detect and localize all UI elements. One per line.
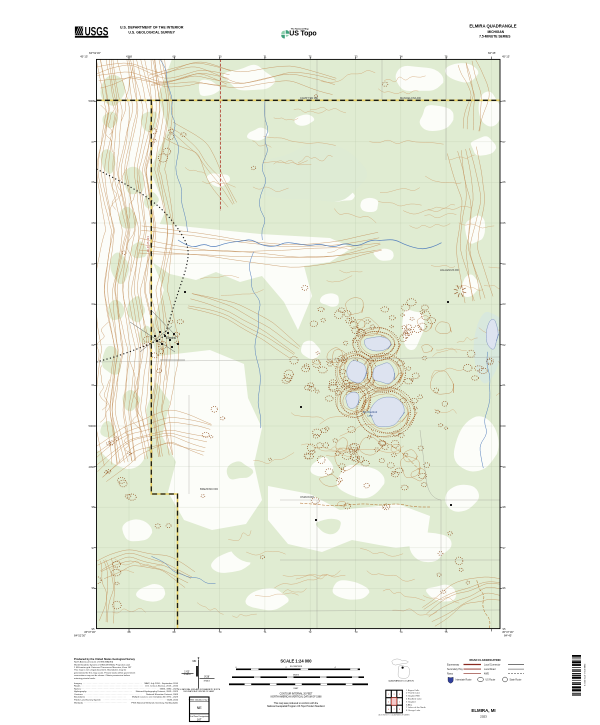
svg-text:06: 06 <box>503 180 506 184</box>
svg-text:70: 70 <box>219 630 222 634</box>
svg-text:71: 71 <box>264 630 267 634</box>
svg-text:Expressway: Expressway <box>447 663 460 666</box>
svg-text:70: 70 <box>219 55 222 59</box>
svg-text:Wetlands: Wetlands <box>74 701 84 704</box>
svg-text:84°45': 84°45' <box>504 634 512 638</box>
svg-text:CONTOUR INTERVAL 20 FEET: CONTOUR INTERVAL 20 FEET <box>280 693 313 696</box>
svg-text:NORTH AMERICAN VERTICAL DATUM: NORTH AMERICAN VERTICAL DATUM OF 1988 <box>271 696 322 699</box>
svg-text:HALLENIUS RD: HALLENIUS RD <box>440 268 459 272</box>
svg-text:FWS National Wetlands Inventor: FWS National Wetlands Inventory, Not Ava… <box>131 701 178 704</box>
svg-text:FEET: FEET <box>294 688 300 690</box>
svg-text:State Route: State Route <box>510 679 523 682</box>
svg-text:OSMUN RD: OSMUN RD <box>300 495 314 499</box>
svg-text:04: 04 <box>503 262 506 266</box>
svg-text:National Geospatial Program US: National Geospatial Program US Topo Prod… <box>267 705 325 708</box>
svg-text:Lake: Lake <box>367 414 373 418</box>
svg-text:74: 74 <box>400 630 403 634</box>
svg-text:Elmira: Elmira <box>166 336 176 340</box>
svg-text:Hydrography: Hydrography <box>74 690 87 693</box>
svg-text:U.S. GEOLOGICAL SURVEY: U.S. GEOLOGICAL SURVEY <box>128 31 175 35</box>
svg-text:National Hydrography Dataset,: National Hydrography Dataset, 2009 - 202… <box>136 690 179 693</box>
svg-text:ADJOINING 7.5' QUADRANGLE NAME: ADJOINING 7.5' QUADRANGLE NAMES <box>378 714 410 717</box>
svg-text:6 Alba: 6 Alba <box>406 703 413 706</box>
svg-text:7.5-MINUTE SERIES: 7.5-MINUTE SERIES <box>479 35 511 39</box>
svg-text:reservations may not be shown.: reservations may not be shown. Obtain pe… <box>74 674 131 677</box>
svg-text:MILES: MILES <box>293 674 299 676</box>
svg-text:0°28': 0°28' <box>204 675 210 678</box>
svg-text:Public Land Survey System: Public Land Survey System <box>74 699 101 702</box>
svg-text:5000: 5000 <box>89 424 95 428</box>
svg-text:1 Boyne Falls: 1 Boyne Falls <box>406 690 420 692</box>
svg-text:4 Bradford Lake: 4 Bradford Lake <box>406 698 422 701</box>
svg-text:Interstate Route: Interstate Route <box>456 679 473 682</box>
svg-text:BREZINSKI RD: BREZINSKI RD <box>200 487 218 491</box>
svg-text:MANCELONA RD: MANCELONA RD <box>400 96 421 100</box>
svg-text:19 MILS: 19 MILS <box>183 674 191 676</box>
svg-text:ELMIRA, MI: ELMIRA, MI <box>471 708 495 713</box>
svg-text:4WD: 4WD <box>484 674 489 676</box>
svg-text:03: 03 <box>503 302 506 306</box>
svg-text:73: 73 <box>355 55 358 59</box>
svg-text:MN: MN <box>192 660 196 663</box>
svg-text:06: 06 <box>92 180 95 184</box>
svg-text:DECLINATION AT CENTER OF SHEET: DECLINATION AT CENTER OF SHEET <box>183 690 215 693</box>
svg-text:7 Lakes of the North: 7 Lakes of the North <box>406 706 426 709</box>
svg-text:QUADRANGLE LOCATION: QUADRANGLE LOCATION <box>388 680 414 683</box>
svg-text:Produced by the United States: Produced by the United States Geological… <box>74 657 136 661</box>
svg-text:Multiple sources; see metadata: Multiple sources; see metadata file 1972… <box>132 696 179 699</box>
svg-text:Local Road: Local Road <box>484 669 496 671</box>
svg-text:CAMP TEN RD: CAMP TEN RD <box>300 96 318 100</box>
svg-text:71: 71 <box>264 55 267 59</box>
svg-text:Boundaries: Boundaries <box>74 696 86 699</box>
svg-text:05: 05 <box>503 221 506 225</box>
svg-text:ISBN 978-1-6772-3037-4: ISBN 978-1-6772-3037-4 <box>583 664 585 687</box>
svg-text:NE: NE <box>197 706 203 710</box>
svg-text:3 Gaylord NW: 3 Gaylord NW <box>406 695 421 698</box>
svg-text:ELMIRA QUADRANGLE: ELMIRA QUADRANGLE <box>469 23 516 28</box>
svg-text:84°45': 84°45' <box>488 51 496 55</box>
svg-text:84°52'30": 84°52'30" <box>89 51 101 55</box>
svg-text:NAIP, July 2016 - September 20: NAIP, July 2016 - September 2016 <box>144 682 178 685</box>
svg-text:Ramp: Ramp <box>447 674 454 676</box>
svg-text:U.S. Census Bureau, 2015 - 201: U.S. Census Bureau, 2015 - 2016 <box>145 685 179 688</box>
svg-text:USNG 100,000-m Sq. ID: USNG 100,000-m Sq. ID <box>189 699 210 701</box>
svg-text:generalized for this map scale: generalized for this map scale. Private … <box>74 671 136 674</box>
svg-text:07: 07 <box>503 140 506 144</box>
svg-text:BLM, 2016: BLM, 2016 <box>167 700 178 702</box>
svg-text:GNIS, 1980 - 2023: GNIS, 1980 - 2023 <box>160 688 179 690</box>
svg-text:ROAD CLASSIFICATION: ROAD CLASSIFICATION <box>469 658 500 662</box>
svg-text:01: 01 <box>503 383 506 387</box>
svg-text:01: 01 <box>92 383 95 387</box>
svg-text:1 000-meter grid: Universal Tr: 1 000-meter grid: Universal Transverse M… <box>74 666 132 669</box>
svg-text:45°15': 45°15' <box>80 55 88 59</box>
svg-text:08: 08 <box>503 99 506 103</box>
svg-text:00: 00 <box>503 424 506 428</box>
svg-text:5 Gaylord: 5 Gaylord <box>406 700 416 703</box>
svg-text:Roads: Roads <box>74 686 81 688</box>
svg-text:84°52'30": 84°52'30" <box>74 634 86 638</box>
svg-text:96: 96 <box>503 586 506 590</box>
svg-text:Names: Names <box>74 688 82 690</box>
svg-text:World Geodetic System of 1984: World Geodetic System of 1984 (WGS84). P… <box>74 663 131 666</box>
svg-text:99: 99 <box>503 465 506 469</box>
svg-text:8 MILS: 8 MILS <box>204 680 211 682</box>
svg-text:73: 73 <box>355 630 358 634</box>
svg-text:98: 98 <box>503 505 506 509</box>
svg-text:16T: 16T <box>197 717 202 721</box>
svg-text:04: 04 <box>92 262 95 266</box>
svg-text:2023: 2023 <box>480 715 487 719</box>
svg-text:MICHIGAN: MICHIGAN <box>487 30 504 34</box>
svg-text:1°03': 1°03' <box>184 670 190 673</box>
svg-text:SCALE 1:24 000: SCALE 1:24 000 <box>280 658 312 663</box>
svg-text:OLD US 131: OLD US 131 <box>146 236 150 252</box>
svg-text:This map was produced to confo: This map was produced to conform with th… <box>274 702 319 705</box>
svg-text:74: 74 <box>400 55 403 59</box>
svg-text:U.S. DEPARTMENT OF THE INTERIO: U.S. DEPARTMENT OF THE INTERIOR <box>120 26 184 30</box>
svg-text:Local Connector: Local Connector <box>484 663 501 666</box>
svg-text:45°15': 45°15' <box>502 55 510 59</box>
svg-text:North American Datum of 1983 (: North American Datum of 1983 (NAD83) <box>74 661 113 664</box>
svg-text:02: 02 <box>503 343 506 347</box>
svg-text:This map is not a legal docume: This map is not a legal document. Bounda… <box>74 669 127 672</box>
svg-text:8 Otsego Lake: 8 Otsego Lake <box>406 709 421 712</box>
svg-text:4999: 4999 <box>89 465 95 469</box>
svg-text:KILOMETERS: KILOMETERS <box>290 666 303 668</box>
svg-text:National Elevation Dataset, 20: National Elevation Dataset, 2009 <box>146 693 179 696</box>
svg-text:entering private lands.: entering private lands. <box>74 677 96 680</box>
svg-text:Secondary Hwy: Secondary Hwy <box>447 668 464 671</box>
svg-text:97: 97 <box>503 546 506 550</box>
svg-text:US Route: US Route <box>486 679 497 682</box>
svg-text:2 Thumb Lake: 2 Thumb Lake <box>406 693 421 695</box>
svg-text:Imagery: Imagery <box>74 682 83 685</box>
svg-text:5008: 5008 <box>89 99 95 103</box>
svg-text:Big Bradford: Big Bradford <box>363 410 378 414</box>
svg-text:US Topo: US Topo <box>289 31 316 38</box>
svg-text:Contours: Contours <box>74 693 84 696</box>
svg-text:96: 96 <box>92 586 95 590</box>
